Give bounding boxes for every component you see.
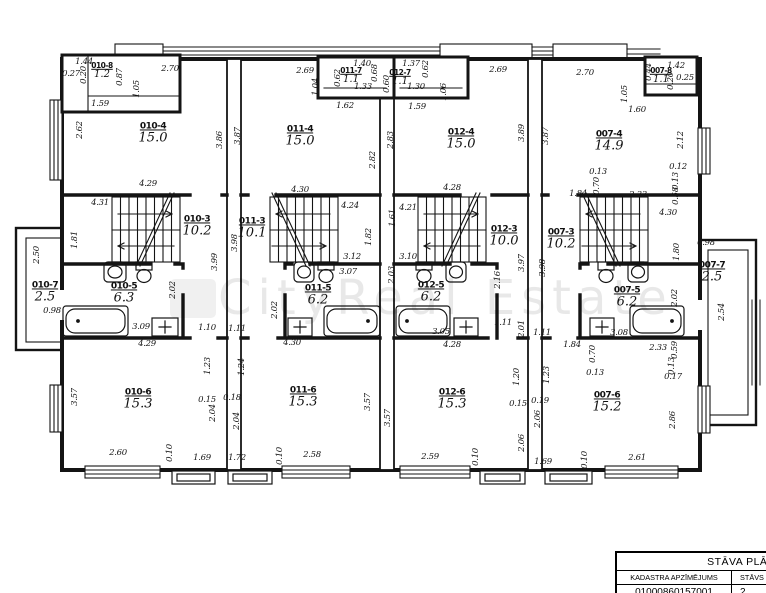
room-label-007-4: 007-414.9 <box>595 130 624 153</box>
dim-label: 4.28 <box>443 183 461 193</box>
room-area: 15.3 <box>124 398 153 412</box>
title-block-row-title: STĀVA PLĀNS <box>617 553 766 571</box>
dim-label: 0.70 <box>588 345 598 363</box>
room-label-010-3: 010-310.2 <box>183 215 212 238</box>
dim-label: 0.27 <box>62 69 80 79</box>
dim-label: 4.28 <box>443 340 461 350</box>
dim-label: 0.15 <box>509 399 527 409</box>
dim-label: 1.30 <box>407 82 425 92</box>
dim-label: 2.62 <box>75 121 85 139</box>
dim-label: 3.08 <box>610 328 628 338</box>
dim-label: 0.20 <box>666 72 676 90</box>
dim-label: 0.62 <box>421 60 431 78</box>
dim-label: 1.20 <box>512 368 522 386</box>
dim-label: 2.60 <box>109 448 127 458</box>
dim-label: 2.06 <box>517 434 527 452</box>
dim-label: 3.97 <box>517 254 527 272</box>
dim-label: 2.03 <box>387 266 397 284</box>
dim-label: 4.30 <box>291 185 309 195</box>
dim-label: 1.05 <box>132 80 142 98</box>
dim-label: 1.40 <box>353 59 371 69</box>
dim-label: 1.61 <box>388 209 398 227</box>
room-label-010-7: 010-72.5 <box>32 281 58 304</box>
room-area: 6.2 <box>305 294 331 308</box>
dim-label: 1.81 <box>70 231 80 249</box>
dim-label: 0.19 <box>531 396 549 406</box>
room-label-010-5: 010-56.3 <box>111 282 137 305</box>
room-area: 15.0 <box>139 132 168 146</box>
dim-label: 2.02 <box>270 301 280 319</box>
dim-label: 0.10 <box>165 444 175 462</box>
title-block: STĀVA PLĀNS KADASTRA APZĪMĒJUMS STĀVS 01… <box>615 551 766 593</box>
room-label-007-7: 007-72.5 <box>699 261 725 284</box>
room-area: 1.2 <box>91 70 113 81</box>
room-area: 15.2 <box>593 401 622 415</box>
dim-label: 1.60 <box>628 105 646 115</box>
dim-label: 3.99 <box>210 253 220 271</box>
dim-label: 1.84 <box>569 189 587 199</box>
dim-label: 1.72 <box>228 453 246 463</box>
dim-label: 2.06 <box>533 410 543 428</box>
sheet-title: STĀVA PLĀNS <box>707 556 766 568</box>
room-area: 6.3 <box>111 292 137 306</box>
dim-label: 0.10 <box>580 451 590 469</box>
dim-label: 4.21 <box>399 203 417 213</box>
dim-label: 3.10 <box>399 252 417 262</box>
dim-label: 1.42 <box>667 61 685 71</box>
dim-label: 2.82 <box>368 151 378 169</box>
dim-label: 1.10 <box>198 323 216 333</box>
dim-label: 1.05 <box>620 85 630 103</box>
floor-number: 2 <box>732 585 766 593</box>
dim-label: 1.11 <box>494 318 512 328</box>
dim-label: 3.89 <box>517 124 527 142</box>
dim-label: 0.87 <box>115 68 125 86</box>
dim-label: 3.87 <box>233 127 243 145</box>
dim-label: 2.69 <box>296 66 314 76</box>
dim-label: 1.69 <box>534 457 552 467</box>
dim-label: 3.98 <box>230 234 240 252</box>
dim-label: 2.16 <box>493 271 503 289</box>
dim-label: 2.54 <box>717 303 727 321</box>
dim-label: 0.17 <box>664 372 682 382</box>
dim-label: 0.13 <box>589 167 607 177</box>
room-label-011-6: 011-615.3 <box>289 386 318 409</box>
room-label-011-3: 011-310.1 <box>238 217 267 240</box>
dim-label: 0.68 <box>370 64 380 82</box>
room-label-007-3: 007-310.2 <box>547 228 576 251</box>
room-area: 2.5 <box>32 291 58 305</box>
room-label-012-5: 012-56.2 <box>418 281 444 304</box>
dim-label: 1.59 <box>408 102 426 112</box>
dim-label: 2.33 <box>649 343 667 353</box>
dim-label: 1.59 <box>91 99 109 109</box>
dim-label: 4.31 <box>91 198 109 208</box>
dim-label: 0.13 <box>586 368 604 378</box>
floor-plan-page: CityReal Estate 010-81.2011-71.1012-71.1… <box>0 0 766 593</box>
dim-label: 3.07 <box>339 267 357 277</box>
room-area: 6.2 <box>418 291 444 305</box>
title-block-row-headers: KADASTRA APZĪMĒJUMS STĀVS <box>617 571 766 585</box>
dim-label: 2.61 <box>628 453 646 463</box>
dim-label: 1.06 <box>439 83 449 101</box>
dim-label: 1.11 <box>228 324 246 334</box>
dim-label: 3.09 <box>132 322 150 332</box>
dim-label: 1.11 <box>533 328 551 338</box>
dim-label: 4.24 <box>341 201 359 211</box>
dim-label: 0.10 <box>275 447 285 465</box>
dim-label: 0.58 <box>671 187 681 205</box>
dim-label: 1.23 <box>203 357 213 375</box>
room-area: 15.3 <box>438 398 467 412</box>
dim-label: 1.62 <box>336 101 354 111</box>
room-label-012-4: 012-415.0 <box>447 128 476 151</box>
dim-label: 3.57 <box>383 409 393 427</box>
room-area: 10.2 <box>183 225 212 239</box>
room-label-010-4: 010-415.0 <box>139 122 168 145</box>
dim-label: 2.01 <box>517 320 527 338</box>
dim-label: 4.29 <box>139 179 157 189</box>
room-area: 10.0 <box>490 235 519 249</box>
dim-label: 2.83 <box>386 131 396 149</box>
dim-label: 1.24 <box>237 358 247 376</box>
room-label-011-4: 011-415.0 <box>286 125 315 148</box>
dim-label: 0.25 <box>676 73 694 83</box>
dim-label: 0.10 <box>471 448 481 466</box>
dim-label: 0.70 <box>592 177 602 195</box>
dim-label: 1.82 <box>364 228 374 246</box>
dim-label: 2.50 <box>32 246 42 264</box>
dim-label: 1.23 <box>542 366 552 384</box>
room-area: 14.9 <box>595 140 624 154</box>
dim-label: 0.12 <box>669 162 687 172</box>
dim-label: 2.70 <box>576 68 594 78</box>
room-label-012-6: 012-615.3 <box>438 388 467 411</box>
title-block-row-values: 01000860157001 2 <box>617 585 766 593</box>
dim-label: 0.98 <box>43 306 61 316</box>
dim-label: 3.05 <box>432 327 450 337</box>
room-label-010-6: 010-615.3 <box>124 388 153 411</box>
dim-label: 1.84 <box>563 340 581 350</box>
annotation-layer: 010-81.2011-71.1012-71.1007-81.1010-415.… <box>0 0 766 593</box>
dim-label: 2.59 <box>421 452 439 462</box>
dim-label: 2.86 <box>668 411 678 429</box>
room-area: 6.2 <box>614 296 640 310</box>
room-area: 10.1 <box>238 227 267 241</box>
dim-label: 0.44 <box>644 63 654 81</box>
dim-label: 2.04 <box>208 404 218 422</box>
room-area: 2.5 <box>699 271 725 285</box>
dim-label: 4.29 <box>138 339 156 349</box>
dim-label: 3.86 <box>215 131 225 149</box>
dim-label: 1.37 <box>402 59 420 69</box>
dim-label: 2.58 <box>303 450 321 460</box>
dim-label: 1.80 <box>672 243 682 261</box>
floor-header: STĀVS <box>732 571 766 584</box>
dim-label: 2.02 <box>168 281 178 299</box>
dim-label: 2.33 <box>629 190 647 200</box>
room-area: 10.2 <box>547 238 576 252</box>
dim-label: 3.57 <box>70 388 80 406</box>
dim-label: 3.57 <box>363 393 373 411</box>
dim-label: 2.69 <box>489 65 507 75</box>
dim-label: 4.30 <box>659 208 677 218</box>
dim-label: 1.33 <box>354 82 372 92</box>
dim-label: 2.02 <box>670 289 680 307</box>
room-label-011-5: 011-56.2 <box>305 284 331 307</box>
dim-label: 2.70 <box>161 64 179 74</box>
dim-label: 3.12 <box>343 252 361 262</box>
dim-label: 0.62 <box>333 69 343 87</box>
room-label-012-3: 012-310.0 <box>490 225 519 248</box>
room-area: 15.0 <box>447 138 476 152</box>
dim-label: 1.04 <box>311 78 321 96</box>
dim-label: 3.87 <box>541 127 551 145</box>
dim-label: 2.12 <box>676 131 686 149</box>
dim-label: 0.20 <box>79 66 89 84</box>
cadastre-number: 01000860157001 <box>617 585 732 593</box>
dim-label: 3.98 <box>538 259 548 277</box>
dim-label: 1.69 <box>193 453 211 463</box>
dim-label: 0.18 <box>223 393 241 403</box>
room-area: 15.3 <box>289 396 318 410</box>
room-area: 15.0 <box>286 135 315 149</box>
dim-label: 0.60 <box>382 75 392 93</box>
room-label-010-8: 010-81.2 <box>91 62 113 80</box>
cadastre-header: KADASTRA APZĪMĒJUMS <box>617 571 732 584</box>
dim-label: 2.04 <box>232 412 242 430</box>
room-label-007-6: 007-615.2 <box>593 391 622 414</box>
dim-label: 4.30 <box>283 338 301 348</box>
dim-label: 0.98 <box>697 238 715 248</box>
room-label-007-5: 007-56.2 <box>614 286 640 309</box>
